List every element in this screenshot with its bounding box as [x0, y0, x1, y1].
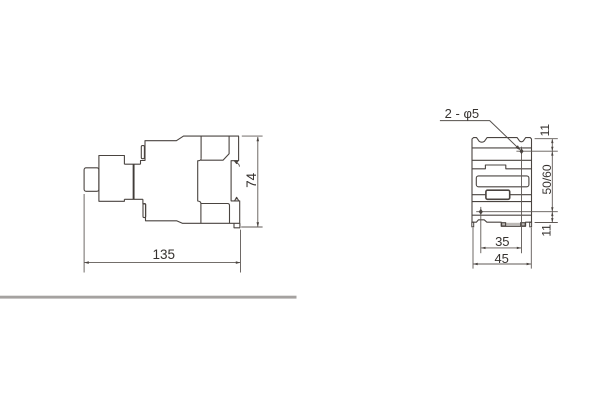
svg-text:35: 35: [495, 234, 509, 249]
svg-text:11: 11: [540, 224, 554, 237]
svg-text:45: 45: [494, 251, 508, 266]
svg-text:11: 11: [538, 124, 552, 137]
svg-text:74: 74: [244, 172, 259, 188]
svg-text:50/60: 50/60: [540, 164, 554, 194]
svg-text:135: 135: [153, 247, 176, 262]
svg-text:2 - φ5: 2 - φ5: [445, 106, 479, 121]
